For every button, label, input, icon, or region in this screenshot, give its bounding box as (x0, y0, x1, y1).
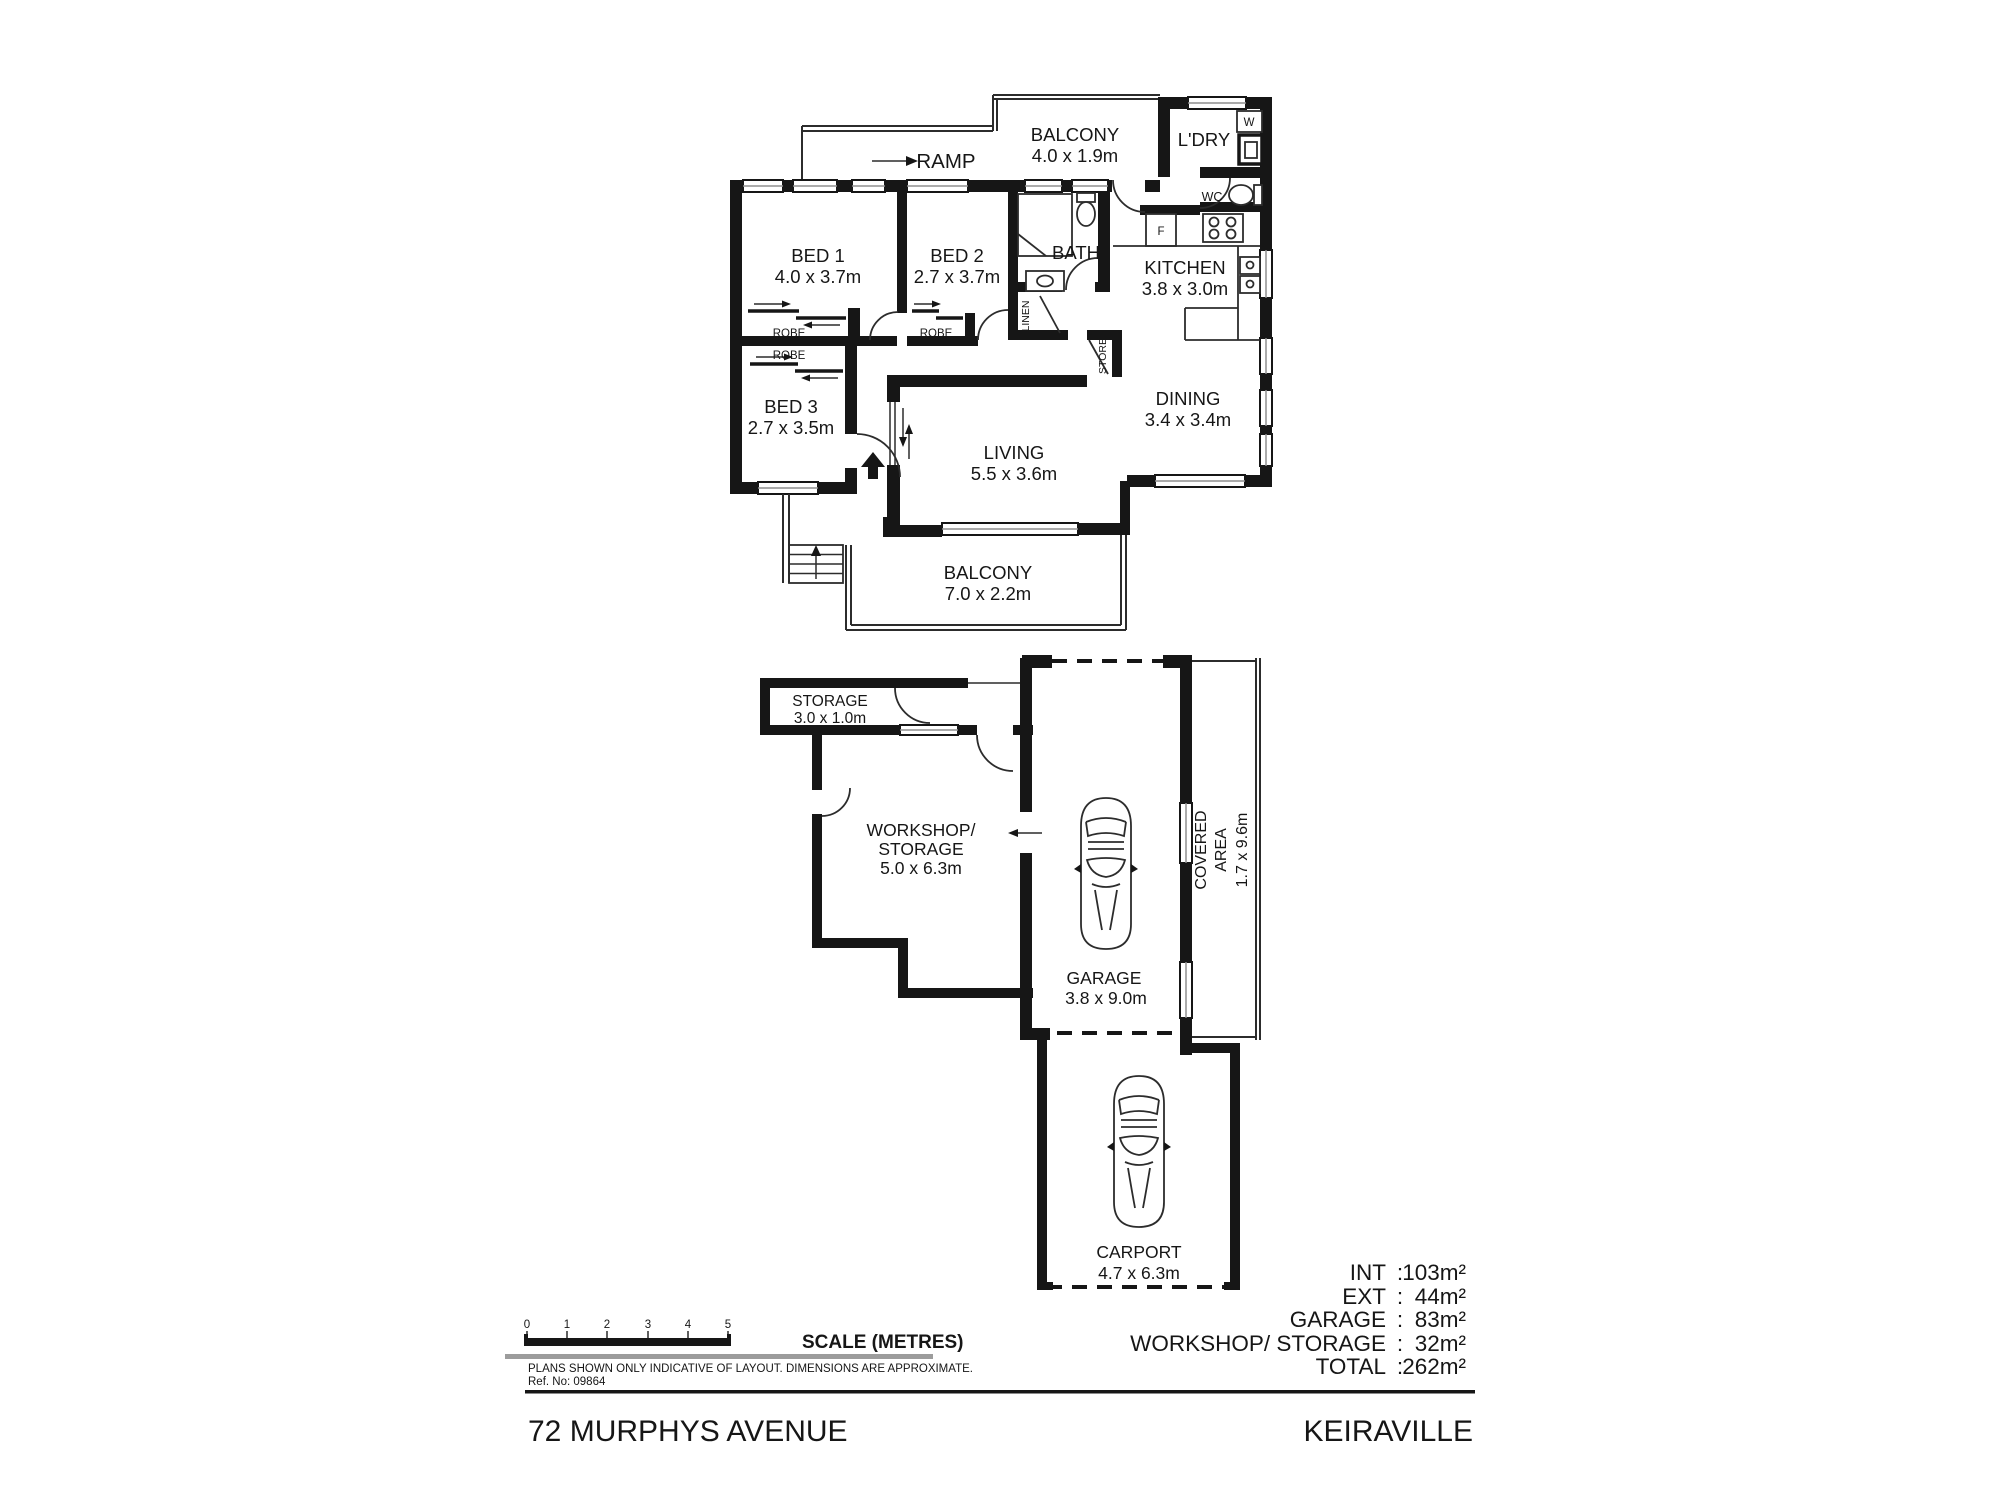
area-row-value: 103m² (1402, 1260, 1466, 1285)
covered-area-label-line1: COVERED (1193, 810, 1210, 889)
wc-toilet-icon (1254, 185, 1262, 205)
garage-label: GARAGE (1067, 968, 1142, 988)
balcony-bottom-dims: 7.0 x 2.2m (945, 583, 1031, 604)
lower-floor-plan: STORAGE 3.0 x 1.0m WORKSHOP/ STORAGE 5.0… (760, 655, 1260, 1290)
scale-tick-2: 2 (604, 1319, 610, 1331)
kitchen-sink-icon (1240, 257, 1260, 274)
store-label: STORE (1097, 338, 1109, 374)
bed3-label: BED 3 (764, 396, 817, 417)
entry-arrow-icon (861, 452, 885, 479)
living-dims: 5.5 x 3.6m (971, 463, 1057, 484)
dining-label: DINING (1156, 388, 1221, 409)
area-row-label: GARAGE (1290, 1307, 1386, 1332)
dining-dims: 3.4 x 3.4m (1145, 409, 1231, 430)
robe-label-bed3: ROBE (773, 350, 806, 362)
carport-dims: 4.7 x 6.3m (1098, 1263, 1180, 1283)
area-row-value: 83m² (1415, 1307, 1467, 1332)
car-icon-carport (1107, 1076, 1171, 1227)
scale-bar: 0 1 2 3 4 5 SCALE (METRES) (505, 1319, 964, 1359)
balcony-bottom-label: BALCONY (944, 562, 1032, 583)
area-row-label: WORKSHOP/ STORAGE (1130, 1331, 1386, 1356)
storage-dims: 3.0 x 1.0m (794, 710, 866, 727)
area-summary-table: INT : 103m² EXT : 44m² GARAGE : 83m² WOR… (1130, 1260, 1466, 1379)
workshop-label-line1: WORKSHOP/ (867, 820, 976, 840)
title-rule (525, 1390, 1475, 1394)
kitchen-dims: 3.8 x 3.0m (1142, 278, 1228, 299)
scale-tick-5: 5 (725, 1319, 731, 1331)
bed3-dims: 2.7 x 3.5m (748, 417, 834, 438)
storage-label: STORAGE (792, 693, 868, 710)
scale-tick-1: 1 (564, 1319, 570, 1331)
covered-area-label-line2: AREA (1213, 828, 1230, 872)
address-text: 72 MURPHYS AVENUE (528, 1415, 848, 1448)
upper-floor-plan: RAMP BALCONY 4.0 x 1.9m L'DRY W WC BED 1… (730, 95, 1272, 630)
bed1-label: BED 1 (791, 245, 844, 266)
area-row-label: INT (1350, 1260, 1387, 1285)
area-row-sep: : (1397, 1331, 1403, 1356)
suburb-text: KEIRAVILLE (1303, 1415, 1473, 1448)
bed2-label: BED 2 (930, 245, 983, 266)
title-block: 72 MURPHYS AVENUE KEIRAVILLE (528, 1415, 1473, 1448)
kitchen-label: KITCHEN (1144, 257, 1225, 278)
area-row-value: 32m² (1415, 1331, 1467, 1356)
covered-area-dims: 1.7 x 9.6m (1234, 813, 1251, 888)
living-label: LIVING (984, 442, 1045, 463)
cooktop-icon (1203, 214, 1243, 242)
vanity-icon (1026, 271, 1064, 291)
disclaimer-text: PLANS SHOWN ONLY INDICATIVE OF LAYOUT. D… (528, 1363, 973, 1375)
linen-label: LINEN (1020, 301, 1032, 332)
area-row-value: 262m² (1402, 1354, 1466, 1379)
area-row-value: 44m² (1415, 1284, 1467, 1309)
stairs-icon (789, 545, 843, 583)
balcony-top-label: BALCONY (1031, 124, 1119, 145)
balcony-top-dims: 4.0 x 1.9m (1032, 145, 1118, 166)
robe-label-bed2: ROBE (920, 328, 953, 340)
workshop-dims: 5.0 x 6.3m (880, 858, 962, 878)
robe-label-bed1: ROBE (773, 328, 806, 340)
ref-number: Ref. No: 09864 (528, 1376, 606, 1388)
bath-label: BATH (1052, 242, 1100, 263)
ramp-arrow-icon (872, 156, 918, 166)
laundry-label: L'DRY (1178, 129, 1231, 150)
laundry-tub-icon (1239, 135, 1262, 164)
workshop-label-line2: STORAGE (878, 839, 963, 859)
scale-tick-0: 0 (524, 1319, 530, 1331)
area-row-label: EXT (1342, 1284, 1386, 1309)
area-row-label: TOTAL (1316, 1354, 1386, 1379)
washer-label: W (1244, 117, 1255, 129)
toilet-icon (1077, 193, 1095, 202)
scale-underline (505, 1354, 933, 1359)
floorplan-page: RAMP BALCONY 4.0 x 1.9m L'DRY W WC BED 1… (0, 0, 2000, 1500)
bed1-dims: 4.0 x 3.7m (775, 266, 861, 287)
bed2-dims: 2.7 x 3.7m (914, 266, 1000, 287)
garage-dims: 3.8 x 9.0m (1065, 988, 1147, 1008)
fridge-label: F (1157, 226, 1164, 238)
scale-title: SCALE (METRES) (802, 1332, 964, 1353)
area-row-sep: : (1397, 1284, 1403, 1309)
scale-tick-4: 4 (685, 1319, 692, 1331)
carport-label: CARPORT (1096, 1242, 1182, 1262)
area-row-sep: : (1397, 1307, 1403, 1332)
floorplan-drawing: RAMP BALCONY 4.0 x 1.9m L'DRY W WC BED 1… (0, 0, 2000, 1500)
wc-label: WC (1202, 190, 1223, 204)
walls-lower (760, 655, 1240, 1290)
car-icon-garage (1074, 798, 1138, 949)
ramp-label: RAMP (916, 150, 975, 173)
scale-tick-3: 3 (645, 1319, 651, 1331)
